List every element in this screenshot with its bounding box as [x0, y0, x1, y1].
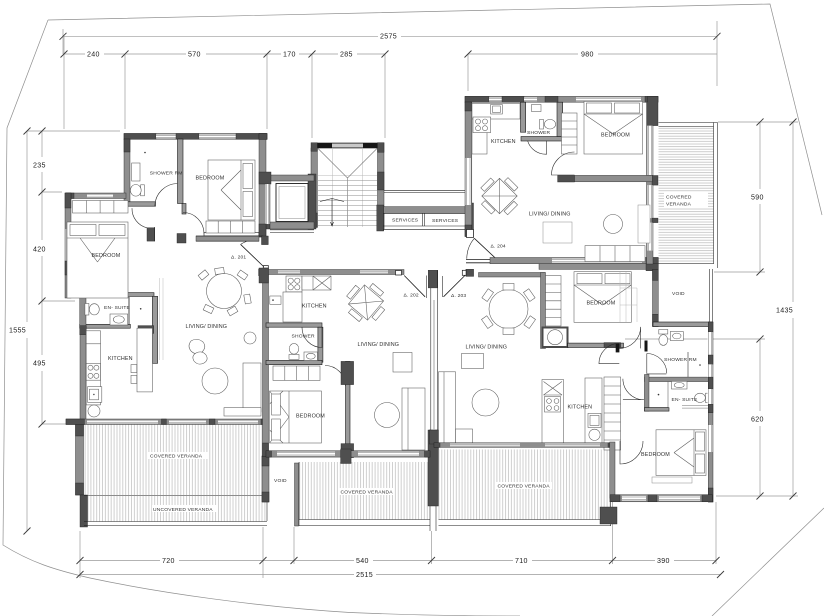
- svg-text:SERVICES: SERVICES: [392, 218, 419, 224]
- svg-text:UNCOVERED VERANDA: UNCOVERED VERANDA: [153, 507, 213, 513]
- svg-text:VOID: VOID: [672, 291, 685, 297]
- svg-text:KITCHEN: KITCHEN: [491, 139, 516, 145]
- svg-text:VERANDA: VERANDA: [666, 202, 692, 208]
- svg-text:KITCHEN: KITCHEN: [302, 304, 327, 310]
- svg-text:620: 620: [751, 416, 764, 424]
- svg-text:LIVING/ DINING: LIVING/ DINING: [358, 342, 400, 348]
- svg-text:COVERED VERANDA: COVERED VERANDA: [341, 490, 394, 496]
- svg-text:1435: 1435: [776, 307, 793, 315]
- svg-text:SHOWER RM: SHOWER RM: [664, 357, 697, 363]
- svg-text:2515: 2515: [356, 571, 373, 579]
- svg-text:285: 285: [340, 51, 353, 59]
- svg-text:240: 240: [87, 51, 100, 59]
- svg-text:LIVING/ DINING: LIVING/ DINING: [529, 211, 571, 217]
- svg-text:BEDROOM: BEDROOM: [601, 132, 630, 138]
- svg-text:Δ. 204: Δ. 204: [491, 243, 506, 249]
- svg-text:EN- SUITE: EN- SUITE: [672, 397, 699, 403]
- svg-text:570: 570: [188, 51, 201, 59]
- svg-text:KITCHEN: KITCHEN: [108, 356, 133, 362]
- svg-text:SERVICES: SERVICES: [432, 218, 459, 224]
- svg-text:VOID: VOID: [274, 478, 287, 484]
- svg-text:COVERED VERANDA: COVERED VERANDA: [150, 454, 203, 460]
- svg-text:235: 235: [33, 162, 46, 170]
- svg-text:COVERED: COVERED: [666, 195, 692, 201]
- svg-text:Δ. 202: Δ. 202: [404, 292, 419, 298]
- svg-text:1555: 1555: [9, 327, 26, 335]
- svg-text:BEDROOM: BEDROOM: [296, 413, 325, 419]
- svg-text:420: 420: [33, 246, 46, 254]
- svg-text:710: 710: [515, 557, 528, 565]
- svg-text:BEDROOM: BEDROOM: [641, 452, 670, 458]
- svg-text:BEDROOM: BEDROOM: [587, 301, 616, 307]
- svg-text:KITCHEN: KITCHEN: [568, 404, 593, 410]
- svg-text:COVERED VERANDA: COVERED VERANDA: [498, 484, 551, 490]
- svg-text:495: 495: [33, 360, 46, 368]
- svg-text:EN- SUITE: EN- SUITE: [104, 305, 131, 311]
- svg-text:590: 590: [751, 194, 764, 202]
- svg-text:SHOWER: SHOWER: [292, 334, 315, 340]
- svg-text:980: 980: [581, 51, 594, 59]
- svg-text:SHOWER RM: SHOWER RM: [150, 170, 183, 176]
- svg-text:720: 720: [162, 557, 175, 565]
- svg-text:SHOWER: SHOWER: [527, 130, 550, 136]
- svg-text:540: 540: [356, 557, 369, 565]
- svg-text:Δ. 201: Δ. 201: [231, 254, 246, 260]
- svg-text:BEDROOM: BEDROOM: [196, 175, 225, 181]
- svg-text:BEDROOM: BEDROOM: [92, 253, 121, 259]
- svg-text:2575: 2575: [380, 32, 397, 40]
- svg-text:170: 170: [283, 51, 296, 59]
- svg-text:LIVING/ DINING: LIVING/ DINING: [466, 344, 508, 350]
- svg-text:Δ. 203: Δ. 203: [451, 293, 466, 299]
- svg-text:390: 390: [657, 557, 670, 565]
- svg-text:LIVING/ DINING: LIVING/ DINING: [186, 324, 228, 330]
